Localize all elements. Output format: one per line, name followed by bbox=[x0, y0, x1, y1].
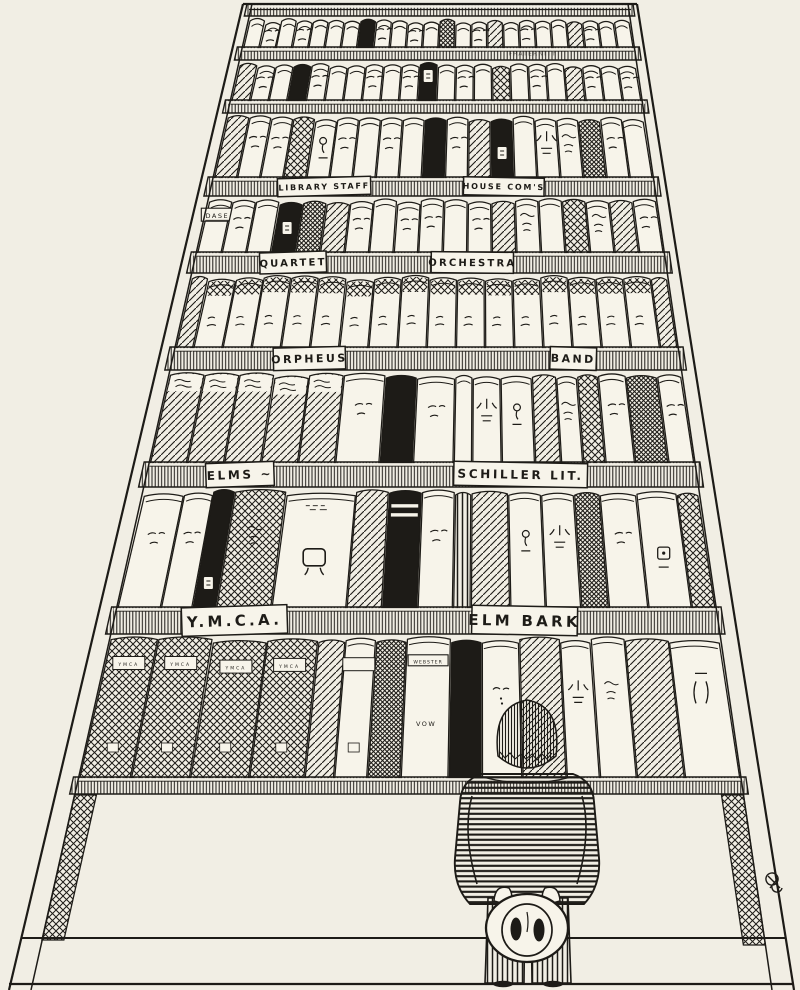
spine-seal bbox=[348, 743, 359, 752]
shelf-label-plate: QUARTET bbox=[259, 251, 327, 274]
shelf-label-text: ORCHESTRA bbox=[428, 258, 516, 270]
spine-seal bbox=[424, 70, 433, 82]
volume-topband bbox=[569, 279, 595, 294]
shoe bbox=[493, 981, 513, 987]
book-spine bbox=[469, 120, 491, 181]
book-spine bbox=[449, 640, 481, 781]
book-spine bbox=[563, 199, 590, 256]
hat-shadow bbox=[534, 919, 545, 942]
book-spine bbox=[471, 491, 509, 611]
book-spine bbox=[399, 118, 424, 181]
book-spine bbox=[454, 376, 472, 466]
book-spine bbox=[454, 493, 471, 611]
book-spine bbox=[418, 63, 437, 104]
shoe bbox=[543, 981, 563, 987]
book-title-label: WEBSTER bbox=[408, 655, 448, 666]
volume-topband bbox=[514, 280, 539, 295]
shelf-label-plate: Y.M.C.A. bbox=[181, 605, 287, 637]
hat-shadow bbox=[511, 918, 522, 941]
volume-topband bbox=[346, 281, 372, 296]
shelf-label-text: HOUSE COM'S bbox=[463, 182, 545, 192]
volume-topband bbox=[597, 279, 623, 294]
book-spine bbox=[509, 493, 545, 611]
shelf-row-c bbox=[214, 116, 653, 181]
volume-topband bbox=[290, 277, 317, 292]
shelf-row-e bbox=[176, 276, 678, 351]
volume-topband bbox=[625, 278, 651, 293]
shelf-label-plate: ELM BARK bbox=[468, 605, 581, 636]
spine-band bbox=[391, 513, 418, 516]
tiny-book-label bbox=[343, 658, 375, 671]
book-spine bbox=[513, 116, 537, 181]
book-spine bbox=[413, 377, 454, 466]
volume-topband bbox=[458, 280, 483, 295]
shelf-row-d: DASE bbox=[197, 199, 663, 256]
tiny-book-label: YMCA bbox=[220, 660, 252, 673]
spine-seal bbox=[162, 743, 173, 752]
volume-topband bbox=[402, 277, 427, 292]
book-spine bbox=[468, 202, 491, 256]
book-spine bbox=[357, 19, 375, 51]
volume-topband bbox=[234, 279, 262, 294]
jacket bbox=[455, 774, 599, 904]
book-spine bbox=[335, 373, 384, 466]
book-spine bbox=[394, 202, 420, 256]
spine-seal bbox=[498, 147, 507, 159]
tiny-book-label: YMCA bbox=[274, 658, 306, 671]
shelf-label-plate: LIBRARY STAFF bbox=[277, 176, 371, 196]
volume-topband bbox=[542, 277, 567, 292]
shelf-row-b bbox=[231, 63, 641, 104]
spine-band bbox=[391, 504, 418, 507]
book-spine bbox=[382, 491, 421, 611]
bookcase-drawing: DASEYMCAYMCAYMCAYMCAWEBSTERVOWFRATERNITY… bbox=[0, 0, 800, 990]
book-spine bbox=[418, 490, 454, 611]
book-spine bbox=[493, 66, 511, 104]
shelf-label-text: SCHILLER LIT. bbox=[457, 467, 583, 483]
book-spine bbox=[539, 199, 565, 256]
shelf-label-plate: SCHILLER LIT. bbox=[454, 461, 588, 488]
tiny-book-label: YMCA bbox=[113, 657, 145, 670]
volume-topband bbox=[262, 277, 289, 292]
shelf-label-text: ELMS ~ bbox=[206, 467, 273, 483]
shelf-row-f bbox=[150, 373, 694, 466]
spine-seal bbox=[276, 743, 287, 752]
spine-seal bbox=[204, 577, 213, 589]
volume-topband bbox=[374, 279, 400, 294]
book-spine bbox=[422, 118, 446, 181]
shelf-label-text: QUARTET bbox=[259, 257, 326, 270]
shelf-label-plate: ORCHESTRA bbox=[428, 252, 516, 274]
book-spine bbox=[445, 117, 467, 181]
book-spine bbox=[532, 375, 560, 466]
tiny-label-text: YMCA bbox=[224, 666, 246, 672]
shelf-label-text: BAND bbox=[551, 352, 596, 366]
shelf-row-h: YMCAYMCAYMCAYMCAWEBSTERVOW bbox=[79, 637, 740, 781]
book-spine bbox=[443, 200, 467, 256]
tiny-label-text: YMCA bbox=[278, 664, 300, 670]
volume-topband bbox=[206, 281, 234, 296]
book-plate-text: DASE bbox=[206, 212, 230, 220]
shelf-label-text: ORPHEUS bbox=[271, 352, 348, 367]
spine-seal bbox=[220, 743, 231, 752]
spine-seal bbox=[107, 743, 118, 752]
shelf-label-plate: ELMS ~ bbox=[205, 461, 274, 487]
shelf-label-text: Y.M.C.A. bbox=[186, 610, 283, 631]
book-title-text: WEBSTER bbox=[413, 660, 442, 666]
spine-seal bbox=[283, 222, 292, 234]
shelf-label-plate: ORPHEUS bbox=[271, 346, 348, 370]
shelf-label-text: ELM BARK bbox=[468, 611, 581, 631]
book-spine bbox=[369, 199, 396, 256]
book-subtitle-text: VOW bbox=[416, 720, 436, 728]
shelf-label-plate: BAND bbox=[550, 347, 597, 371]
shelf-label-faint: FRATERNITY bbox=[509, 51, 557, 58]
book-spine bbox=[473, 377, 501, 466]
volume-topband bbox=[318, 278, 344, 293]
volume-topband bbox=[430, 279, 455, 294]
shelf-label-plate: HOUSE COM'S bbox=[463, 177, 546, 196]
book-spine bbox=[565, 67, 585, 104]
book-spine bbox=[380, 376, 416, 466]
book-spine bbox=[501, 376, 534, 466]
shelf-row-g bbox=[117, 490, 715, 611]
tiny-label-text: YMCA bbox=[117, 662, 139, 668]
tiny-book-label: YMCA bbox=[165, 657, 197, 670]
volume-topband bbox=[486, 280, 511, 295]
tiny-label-text: YMCA bbox=[169, 662, 191, 668]
book-spine bbox=[419, 199, 444, 256]
book-spine bbox=[439, 19, 455, 51]
book-spine bbox=[516, 199, 541, 256]
book-spine bbox=[535, 119, 560, 181]
book-spine bbox=[492, 201, 516, 256]
illustration-canvas: DASEYMCAYMCAYMCAYMCAWEBSTERVOWFRATERNITY… bbox=[0, 0, 800, 990]
